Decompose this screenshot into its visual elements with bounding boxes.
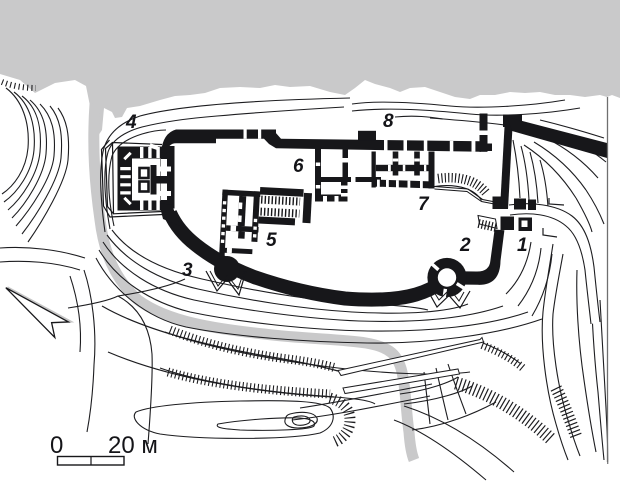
svg-text:0: 0	[50, 432, 63, 459]
svg-text:1: 1	[517, 235, 528, 256]
svg-text:20 м: 20 м	[108, 432, 158, 459]
svg-text:2: 2	[459, 235, 471, 256]
svg-text:5: 5	[266, 230, 277, 251]
svg-text:3: 3	[182, 260, 193, 281]
svg-text:7: 7	[418, 194, 430, 215]
svg-text:8: 8	[383, 111, 394, 132]
svg-text:6: 6	[293, 156, 304, 177]
svg-text:4: 4	[125, 112, 137, 133]
